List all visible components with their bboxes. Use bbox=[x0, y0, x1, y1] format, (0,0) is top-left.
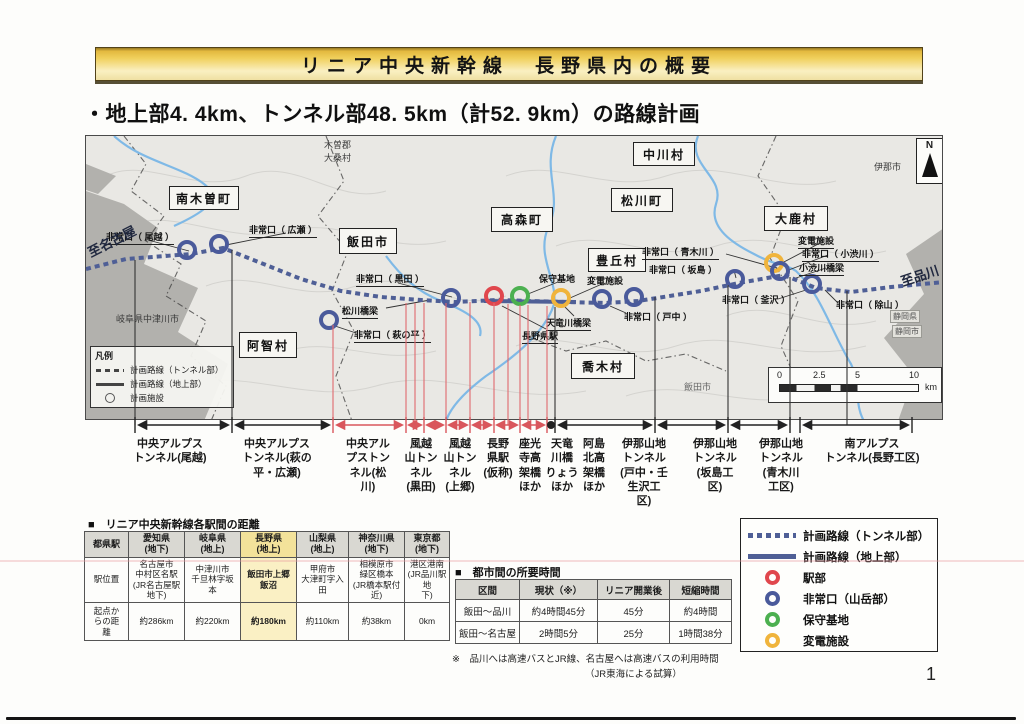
legend-item-station: 駅部 bbox=[741, 567, 937, 588]
substation-marker-west bbox=[551, 288, 571, 308]
route-plan-subtitle: ・地上部4. 4km、トンネル部48. 5km（計52. 9km）の路線計画 bbox=[84, 98, 700, 128]
time-table-source: （JR東海による試算） bbox=[585, 666, 682, 680]
facility-label-emergency-exit-sakashima: 非常口（ 坂島 ） bbox=[649, 263, 717, 276]
time-table-header-row: 区間 現状（※） リニア開業後 短縮時間 bbox=[456, 580, 732, 600]
emergency-exit-marker-koshibugawa bbox=[770, 261, 790, 281]
emergency-exit-marker-kuroda bbox=[441, 288, 461, 308]
tunnel-section-label-chuo-alps-haginodaira-hirose: 中央アルプス トンネル(萩の 平・広瀬) bbox=[228, 437, 326, 480]
scale-tick-0: 0 bbox=[777, 370, 782, 380]
station-table-row-label: 駅位置 bbox=[85, 557, 129, 603]
geo-label-shizuoka-pref: 静岡県 bbox=[890, 310, 920, 323]
travel-time-table: 区間 現状（※） リニア開業後 短縮時間 飯田～品川 約4時間45分 45分 約… bbox=[455, 579, 732, 644]
facility-label-koshibugawa-bridge: 小渋川橋梁 bbox=[799, 261, 844, 276]
solid-route-icon bbox=[741, 554, 803, 559]
north-arrow: N bbox=[916, 138, 943, 184]
map-legend-title: 凡例 bbox=[95, 349, 229, 362]
map-scale-bar: 0 2.5 5 10 km bbox=[768, 367, 942, 403]
time-table-cell: 1時間38分 bbox=[670, 622, 732, 644]
tunnel-section-label-ajima-viaduct: 阿島 北高 架橋 ほか bbox=[577, 437, 611, 494]
dashed-line-icon bbox=[95, 369, 125, 372]
maintenance-depot-marker bbox=[510, 286, 530, 306]
town-label-achi: 阿智村 bbox=[239, 332, 297, 358]
geo-label-ina-city: 伊那市 bbox=[874, 160, 901, 173]
facility-label-emergency-exit-nozoyama: 非常口（ 除山 ） bbox=[836, 298, 904, 311]
facility-label-emergency-exit-haginodaira: 非常口（ 萩の平 ） bbox=[354, 328, 431, 343]
station-table-cell: 約286km bbox=[129, 603, 185, 641]
substation-circle-icon bbox=[741, 633, 803, 648]
scale-tick-2-5: 2.5 bbox=[813, 370, 826, 380]
time-table-cell: 2時間5分 bbox=[520, 622, 598, 644]
station-table-corner: 都県駅 bbox=[85, 532, 129, 558]
town-label-oshika: 大鹿村 bbox=[764, 206, 828, 231]
scale-tick-10: 10 bbox=[909, 370, 919, 380]
facility-label-emergency-exit-koshibugawa: 非常口（ 小渋川 ） bbox=[802, 247, 879, 262]
emergency-exit-marker-haginodaira bbox=[319, 310, 339, 330]
page-title: リニア中央新幹線 長野県内の概要 bbox=[301, 51, 717, 78]
time-table-cell: 飯田～名古屋 bbox=[456, 622, 520, 644]
facility-label-emergency-exit-kamasawa: 非常口（ 釜沢 ） bbox=[722, 293, 790, 306]
emergency-exit-marker-hirose bbox=[209, 234, 229, 254]
route-map: 南木曽町 飯田市 高森町 中川村 松川町 豊丘村 大鹿村 阿智村 喬木村 非常口… bbox=[85, 135, 943, 420]
scan-artifact-line bbox=[0, 560, 1024, 562]
facility-label-substation-west: 変電施設 bbox=[587, 274, 623, 287]
exit-circle-icon bbox=[741, 591, 803, 606]
emergency-exit-marker-kamasawa bbox=[802, 274, 822, 294]
station-table-cell: 甲府市 大津町字入 田 bbox=[297, 557, 349, 603]
emergency-exit-marker-tochu bbox=[592, 289, 612, 309]
north-arrow-icon bbox=[922, 153, 938, 177]
circle-icon bbox=[95, 393, 125, 403]
time-table-header-current: 現状（※） bbox=[520, 580, 598, 600]
time-table-row-nagoya: 飯田～名古屋 2時間5分 25分 1時間38分 bbox=[456, 622, 732, 644]
time-table-header-section: 区間 bbox=[456, 580, 520, 600]
legend-item-substation: 変電施設 bbox=[741, 630, 937, 651]
page-number: 1 bbox=[926, 664, 936, 685]
legend-item-tunnel-route: 計画路線（トンネル部） bbox=[741, 525, 937, 546]
north-label: N bbox=[926, 140, 933, 151]
station-marker-nagano bbox=[484, 286, 504, 306]
town-label-iida: 飯田市 bbox=[339, 228, 397, 254]
station-table-cell: 約220km bbox=[185, 603, 241, 641]
map-legend-item-tunnel: 計画路線（トンネル部） bbox=[95, 363, 229, 377]
town-label-matsukawa: 松川町 bbox=[611, 188, 673, 212]
station-circle-icon bbox=[741, 570, 803, 585]
tunnel-section-label-minami-alps-nagano: 南アルプス トンネル(長野工区) bbox=[812, 437, 932, 466]
title-banner: リニア中央新幹線 長野県内の概要 bbox=[95, 47, 923, 81]
time-table-row-shinagawa: 飯田～品川 約4時間45分 45分 約4時間 bbox=[456, 600, 732, 622]
station-table-distance-row: 起点か らの距 離 約286km 約220km 約180km 約110km 約3… bbox=[85, 603, 450, 641]
time-table-cell: 約4時間45分 bbox=[520, 600, 598, 622]
geo-label-gifu-nakatsugawa: 岐阜県中津川市 bbox=[116, 312, 179, 325]
facility-label-matsukawa-bridge: 松川橋梁 bbox=[342, 304, 378, 319]
station-table-title: ■ リニア中央新幹線各駅間の距離 bbox=[88, 516, 260, 532]
tunnel-section-label-nagano-station: 長野 県駅 (仮称) bbox=[478, 437, 518, 480]
time-table-header-after-linear: リニア開業後 bbox=[598, 580, 670, 600]
station-table-header-kanagawa: 神奈川県 (地下) bbox=[349, 532, 405, 558]
map-legend-box: 凡例 計画路線（トンネル部） 計画路線（地上部） 計画施設 bbox=[90, 346, 234, 408]
station-table-cell: 中津川市 千旦林字坂 本 bbox=[185, 557, 241, 603]
station-table-cell: 0km bbox=[405, 603, 450, 641]
emergency-exit-marker-aokigawa bbox=[725, 269, 745, 289]
station-table-cell-nagano: 飯田市上郷 飯沼 bbox=[241, 557, 297, 603]
tunnel-section-label-tenryu-bridge: 天竜 川橋 りょう ほか bbox=[544, 437, 580, 494]
station-table-header-nagano: 長野県 (地上) bbox=[241, 532, 297, 558]
station-table-row-label: 起点か らの距 離 bbox=[85, 603, 129, 641]
station-table-cell: 約110km bbox=[297, 603, 349, 641]
scan-bottom-edge bbox=[6, 717, 1016, 720]
time-table-cell: 45分 bbox=[598, 600, 670, 622]
station-table-header-tokyo: 東京都 (地下) bbox=[405, 532, 450, 558]
facility-label-emergency-exit-aokigawa: 非常口（ 青木川 ） bbox=[642, 245, 719, 260]
station-table-cell: 相模原市 緑区橋本 (JR橋本駅付 近) bbox=[349, 557, 405, 603]
scale-bar-graphic bbox=[779, 384, 919, 392]
emergency-exit-marker-ogoshi bbox=[177, 240, 197, 260]
scale-unit-km: km bbox=[925, 382, 937, 392]
dashed-route-icon bbox=[741, 533, 803, 538]
time-table-cell: 飯田～品川 bbox=[456, 600, 520, 622]
tunnel-section-label-zakoji-viaduct: 座光 寺高 架橋 ほか bbox=[513, 437, 547, 494]
facility-label-emergency-exit-kuroda: 非常口（ 黒田 ） bbox=[356, 272, 424, 287]
facility-label-emergency-exit-hirose: 非常口（ 広瀬 ） bbox=[249, 223, 317, 238]
facility-label-maintenance-depot: 保守基地 bbox=[539, 272, 575, 285]
station-table-header-yamanashi: 山梨県 (地上) bbox=[297, 532, 349, 558]
station-table-cell: 約38km bbox=[349, 603, 405, 641]
station-table-header-row: 都県駅 愛知県 (地下) 岐阜県 (地上) 長野県 (地上) 山梨県 (地上) … bbox=[85, 532, 450, 558]
emergency-exit-marker-sakashima bbox=[624, 287, 644, 307]
depot-circle-icon bbox=[741, 612, 803, 627]
town-label-toyooka: 豊丘村 bbox=[588, 248, 646, 272]
legend-item-maintenance-depot: 保守基地 bbox=[741, 609, 937, 630]
map-legend-item-surface: 計画路線（地上部） bbox=[95, 377, 229, 391]
town-label-nagiso: 南木曽町 bbox=[169, 186, 239, 210]
station-table-cell-nagano: 約180km bbox=[241, 603, 297, 641]
legend-item-emergency-exit: 非常口（山岳部） bbox=[741, 588, 937, 609]
tunnel-section-label-chuo-alps-matsukawa: 中央アル プストン ネル(松 川) bbox=[338, 437, 398, 494]
tunnel-section-label-kazakoshi-kuroda: 風越 山トン ネル (黒田) bbox=[401, 437, 441, 494]
tunnel-section-label-inasanchi-tochu: 伊那山地 トンネル (戸中・壬 生沢工 区) bbox=[610, 437, 678, 508]
route-legend-box: 計画路線（トンネル部） 計画路線（地上部） 駅部 非常口（山岳部） 保守基地 変… bbox=[740, 518, 938, 652]
time-table-cell: 25分 bbox=[598, 622, 670, 644]
geo-label-iida-boundary: 飯田市 bbox=[684, 380, 711, 393]
station-table-header-gifu: 岐阜県 (地上) bbox=[185, 532, 241, 558]
facility-label-emergency-exit-tochu: 非常口（ 戸中 ） bbox=[624, 310, 692, 323]
map-legend-item-facility: 計画施設 bbox=[95, 391, 229, 405]
town-label-takamori: 高森町 bbox=[491, 207, 553, 232]
geo-label-shizuoka-city: 静岡市 bbox=[892, 325, 922, 338]
station-table-location-row: 駅位置 名古屋市 中村区名駅 (JR名古屋駅 地下) 中津川市 千旦林字坂 本 … bbox=[85, 557, 450, 603]
station-distance-table: 都県駅 愛知県 (地下) 岐阜県 (地上) 長野県 (地上) 山梨県 (地上) … bbox=[84, 531, 450, 641]
station-table-cell: 港区港南 (JR品川駅地 下) bbox=[405, 557, 450, 603]
station-table-header-aichi: 愛知県 (地下) bbox=[129, 532, 185, 558]
time-table-cell: 約4時間 bbox=[670, 600, 732, 622]
station-table-cell: 名古屋市 中村区名駅 (JR名古屋駅 地下) bbox=[129, 557, 185, 603]
time-table-footnote: ※ 品川へは高速バスとJR線、名古屋へは高速バスの利用時間 bbox=[452, 651, 719, 665]
town-label-nakagawa: 中川村 bbox=[633, 142, 695, 166]
legend-item-surface-route: 計画路線（地上部） bbox=[741, 546, 937, 567]
tunnel-section-label-inasanchi-sakashima: 伊那山地 トンネル (坂島工 区) bbox=[684, 437, 746, 494]
scanned-slide-page: { "banner": {"title": "リニア中央新幹線 長野県内の概要"… bbox=[0, 0, 1024, 724]
facility-label-nagano-station: 長野県駅 bbox=[522, 329, 558, 344]
tunnel-section-label-chuo-alps-ogoshi: 中央アルプス トンネル(尾越) bbox=[120, 437, 220, 466]
geo-label-kiso-okuwa: 木曽郡 大桑村 bbox=[324, 138, 351, 164]
time-table-title: ■ 都市間の所要時間 bbox=[455, 564, 561, 580]
scale-tick-5: 5 bbox=[855, 370, 860, 380]
solid-line-icon bbox=[95, 383, 125, 386]
town-label-takagi: 喬木村 bbox=[571, 353, 635, 379]
time-table-header-saved: 短縮時間 bbox=[670, 580, 732, 600]
tunnel-section-label-inasanchi-aokigawa: 伊那山地 トンネル (青木川 工区) bbox=[750, 437, 812, 494]
tunnel-section-label-kazakoshi-kamisato: 風越 山トン ネル (上郷) bbox=[440, 437, 480, 494]
